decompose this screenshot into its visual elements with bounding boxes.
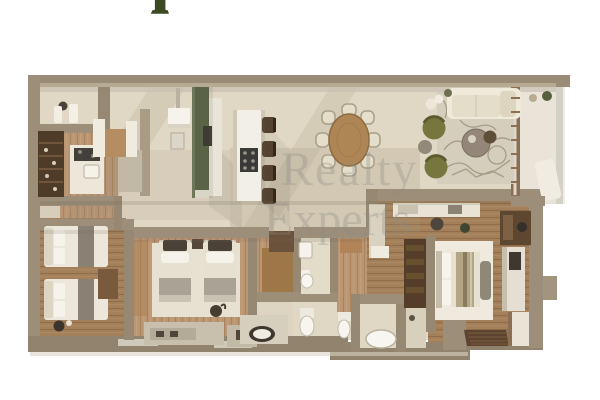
svg-text:Experts: Experts [264,193,411,246]
svg-text:Realty: Realty [281,143,418,196]
